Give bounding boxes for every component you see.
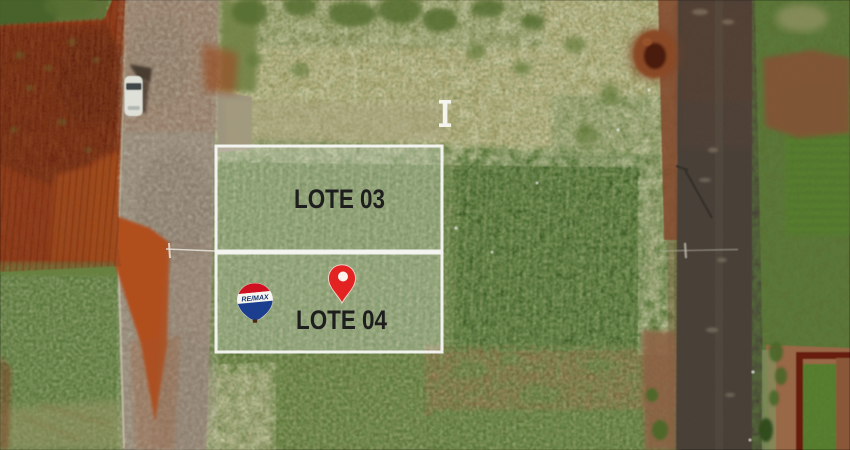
svg-text:LOTE 04: LOTE 04 xyxy=(296,305,387,335)
svg-text:LOTE 03: LOTE 03 xyxy=(294,184,385,214)
